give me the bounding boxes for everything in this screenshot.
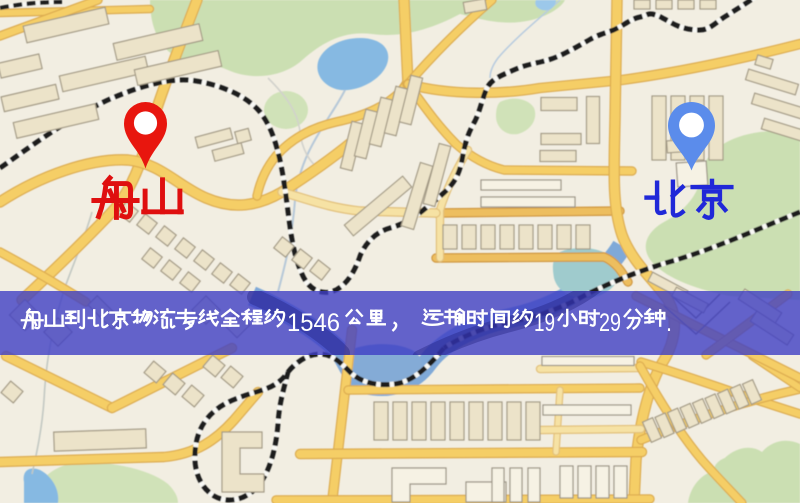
svg-text:.: .: [666, 309, 672, 337]
svg-text:19: 19: [534, 309, 555, 337]
svg-text:1546: 1546: [287, 309, 340, 337]
svg-text:29: 29: [599, 309, 621, 337]
